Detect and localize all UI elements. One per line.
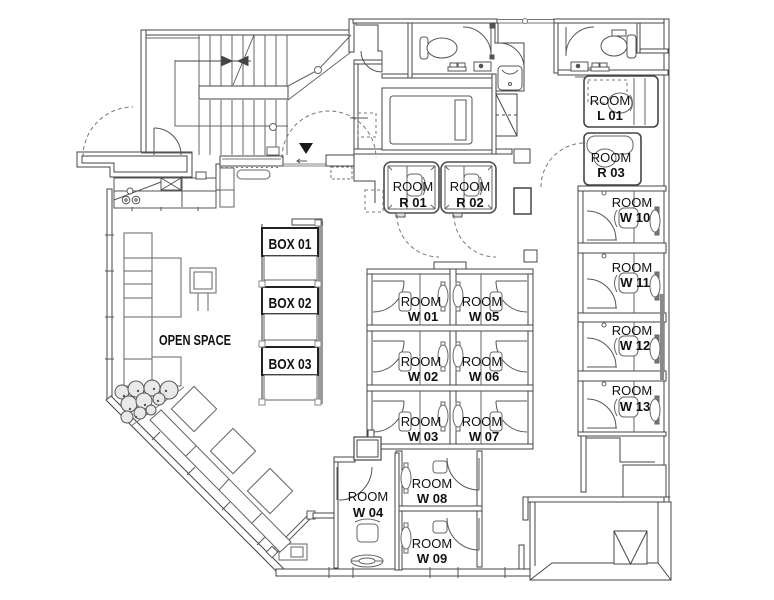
- svg-text:ROOM: ROOM: [412, 536, 452, 551]
- svg-text:ROOM: ROOM: [612, 383, 652, 398]
- svg-text:ROOM: ROOM: [612, 323, 652, 338]
- svg-text:ROOM: ROOM: [612, 260, 652, 275]
- svg-text:W 05: W 05: [469, 309, 499, 324]
- svg-text:ROOM: ROOM: [612, 195, 652, 210]
- svg-text:W 08: W 08: [417, 491, 447, 506]
- svg-text:W 12: W 12: [620, 338, 650, 353]
- svg-text:ROOM: ROOM: [590, 93, 630, 108]
- svg-text:W 09: W 09: [417, 551, 447, 566]
- svg-text:W 02: W 02: [408, 369, 438, 384]
- svg-text:ROOM: ROOM: [393, 179, 433, 194]
- svg-text:W 01: W 01: [408, 309, 438, 324]
- svg-text:W 11: W 11: [620, 275, 650, 290]
- svg-text:ROOM: ROOM: [401, 294, 441, 309]
- svg-text:W 04: W 04: [353, 505, 384, 520]
- svg-text:W 03: W 03: [408, 429, 438, 444]
- svg-text:ROOM: ROOM: [401, 354, 441, 369]
- svg-text:ROOM: ROOM: [462, 294, 502, 309]
- svg-text:ROOM: ROOM: [450, 179, 490, 194]
- svg-text:R 03: R 03: [597, 165, 624, 180]
- svg-text:R 02: R 02: [456, 195, 483, 210]
- svg-text:OPEN SPACE: OPEN SPACE: [159, 332, 231, 349]
- svg-text:BOX 02: BOX 02: [269, 295, 312, 312]
- svg-text:ROOM: ROOM: [462, 414, 502, 429]
- svg-text:R 01: R 01: [399, 195, 426, 210]
- svg-text:BOX 01: BOX 01: [269, 236, 312, 253]
- svg-text:ROOM: ROOM: [591, 150, 631, 165]
- svg-text:L 01: L 01: [597, 108, 623, 123]
- svg-text:ROOM: ROOM: [401, 414, 441, 429]
- svg-text:W 13: W 13: [620, 399, 650, 414]
- svg-text:ROOM: ROOM: [348, 489, 388, 504]
- svg-text:ROOM: ROOM: [462, 354, 502, 369]
- svg-text:W 10: W 10: [620, 210, 650, 225]
- svg-text:ROOM: ROOM: [412, 476, 452, 491]
- svg-text:BOX 03: BOX 03: [269, 356, 312, 373]
- svg-text:W 06: W 06: [469, 369, 499, 384]
- svg-text:W 07: W 07: [469, 429, 499, 444]
